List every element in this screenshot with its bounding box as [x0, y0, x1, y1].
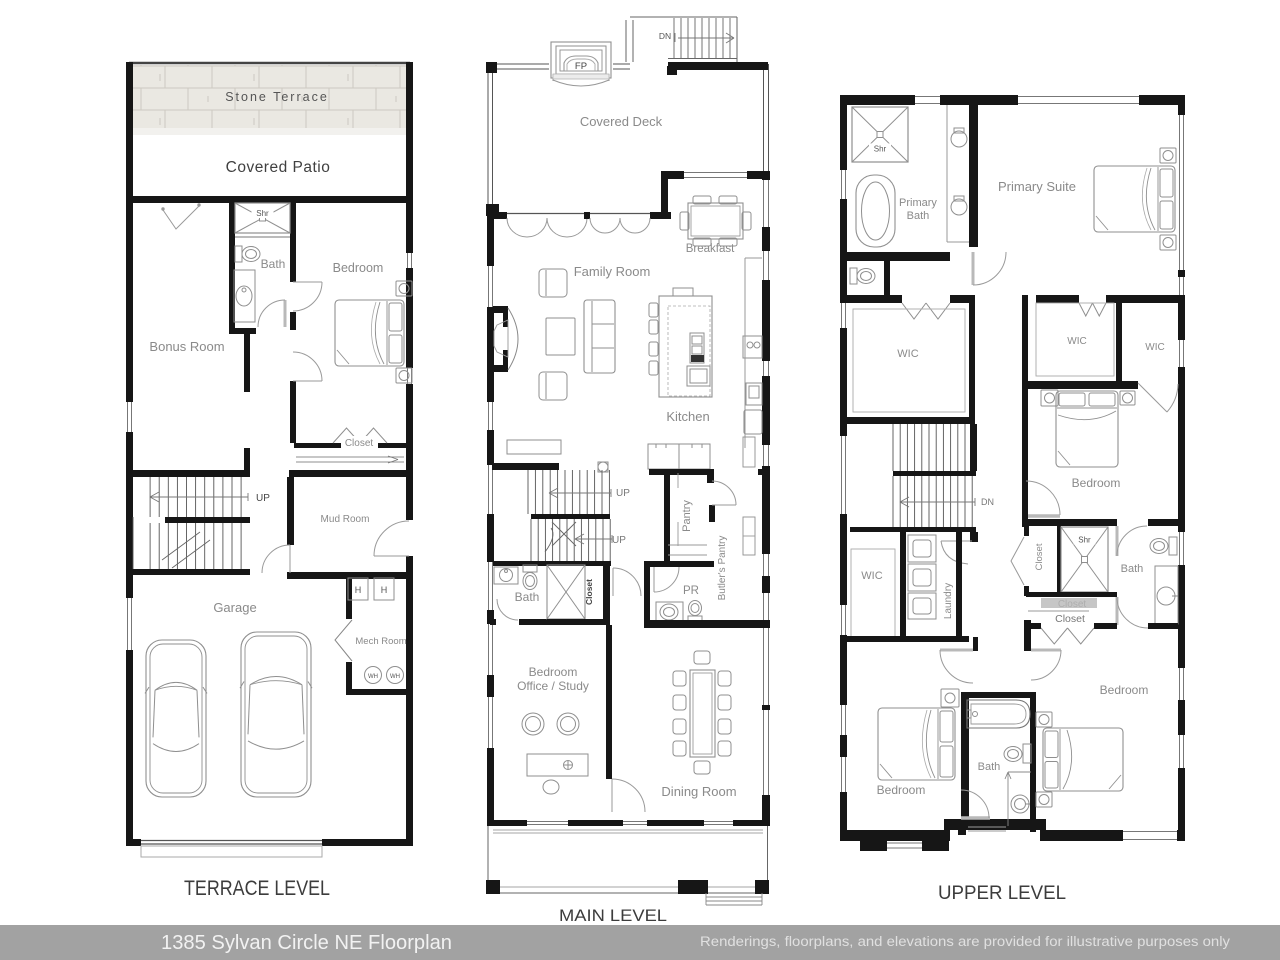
svg-text:UP: UP [256, 493, 270, 504]
svg-text:Bedroom: Bedroom [877, 783, 926, 797]
svg-text:Bedroom: Bedroom [529, 665, 578, 679]
svg-text:Laundry: Laundry [943, 583, 954, 619]
svg-text:Primary: Primary [899, 197, 937, 209]
svg-text:DN: DN [981, 497, 994, 507]
svg-text:Bath: Bath [1121, 563, 1144, 575]
svg-text:Closet: Closet [1058, 599, 1087, 610]
svg-text:TERRACE LEVEL: TERRACE LEVEL [184, 877, 330, 900]
svg-text:Renderings, floorplans, and el: Renderings, floorplans, and elevations a… [700, 934, 1230, 949]
svg-text:UP: UP [612, 535, 626, 546]
svg-text:Kitchen: Kitchen [666, 409, 709, 424]
svg-text:UP: UP [616, 488, 630, 499]
svg-text:UPPER LEVEL: UPPER LEVEL [938, 883, 1066, 904]
svg-text:Butler's Pantry: Butler's Pantry [717, 536, 728, 601]
svg-text:Dining Room: Dining Room [661, 784, 736, 799]
svg-text:Bath: Bath [907, 210, 930, 222]
svg-text:Bedroom: Bedroom [333, 261, 384, 275]
svg-text:Bedroom: Bedroom [1072, 476, 1121, 490]
svg-text:Mud Room: Mud Room [321, 514, 370, 525]
svg-text:H: H [381, 585, 388, 595]
svg-text:Stone Terrace: Stone Terrace [225, 90, 329, 104]
svg-text:FP: FP [575, 61, 587, 72]
svg-text:Bath: Bath [978, 761, 1001, 773]
svg-text:Shr: Shr [256, 209, 269, 218]
svg-text:1385 Sylvan Circle NE Floorpla: 1385 Sylvan Circle NE Floorplan [161, 932, 452, 954]
svg-text:DN: DN [659, 31, 671, 41]
svg-text:Closet: Closet [1055, 613, 1085, 625]
svg-text:Covered Deck: Covered Deck [580, 114, 663, 129]
svg-text:Primary Suite: Primary Suite [998, 179, 1076, 194]
svg-text:Garage: Garage [213, 600, 256, 615]
svg-text:MAIN LEVEL: MAIN LEVEL [559, 907, 667, 925]
svg-text:Office / Study: Office / Study [517, 679, 589, 693]
svg-text:WH: WH [390, 674, 400, 680]
svg-text:Closet: Closet [345, 438, 374, 449]
svg-text:Pantry: Pantry [681, 500, 693, 532]
svg-text:Bath: Bath [515, 590, 540, 604]
svg-text:Breakfast: Breakfast [686, 243, 735, 255]
svg-text:WIC: WIC [897, 348, 918, 360]
svg-text:H: H [355, 585, 362, 595]
svg-text:WIC: WIC [1067, 336, 1086, 347]
svg-text:PR: PR [683, 585, 699, 597]
svg-text:Bonus Room: Bonus Room [149, 339, 224, 354]
svg-text:WIC: WIC [861, 570, 882, 582]
svg-text:WIC: WIC [1145, 342, 1164, 353]
svg-text:Shr: Shr [874, 144, 887, 153]
svg-text:Closet: Closet [1034, 543, 1045, 570]
svg-text:Family Room: Family Room [574, 264, 651, 279]
svg-text:Shr: Shr [1078, 535, 1091, 544]
svg-text:Covered Patio: Covered Patio [226, 159, 331, 176]
svg-text:Mech Room: Mech Room [355, 636, 406, 647]
svg-text:Bedroom: Bedroom [1100, 683, 1149, 697]
svg-text:Bath: Bath [261, 257, 286, 271]
svg-text:Closet: Closet [584, 579, 594, 605]
svg-text:WH: WH [368, 674, 378, 680]
